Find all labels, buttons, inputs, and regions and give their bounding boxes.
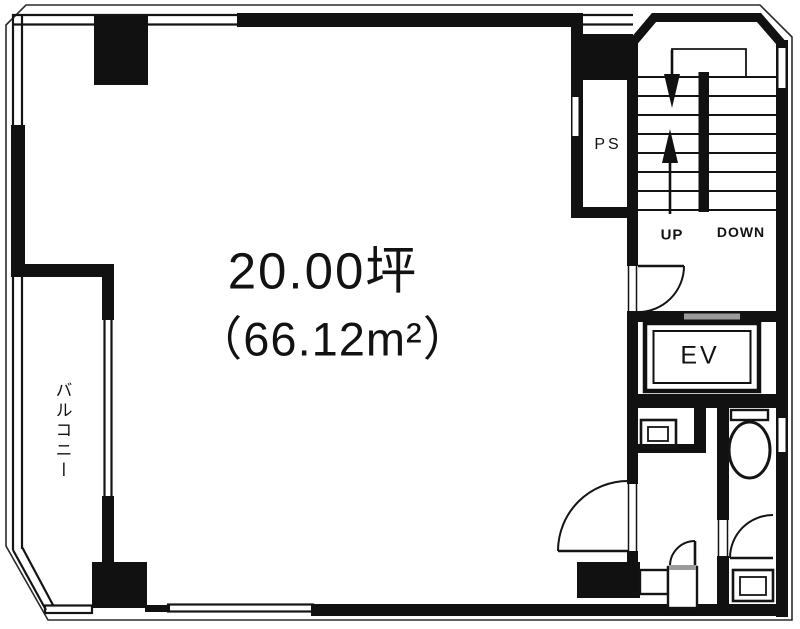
column-top-left — [94, 16, 148, 85]
stair-hall-door — [629, 266, 685, 312]
right-wall-window-wc — [779, 418, 786, 452]
stairs-up-label: UP — [661, 228, 684, 243]
washroom-cabinet — [640, 565, 697, 608]
floor-plan: 20.00坪 （66.12m²） バルコニー PS UP DOWN EV — [0, 0, 800, 629]
wc-wall-upper — [717, 408, 729, 520]
washroom-left-wall-strip — [627, 551, 638, 563]
fixtures — [640, 410, 773, 608]
wc-door — [719, 515, 774, 558]
stairs-down-label: DOWN — [717, 225, 765, 239]
stairwell-left-wall — [627, 38, 638, 266]
hand-basin-icon — [733, 570, 773, 601]
bottom-window-middle — [168, 605, 313, 612]
balcony-top-wall — [11, 264, 114, 277]
stairs-down-arrow-icon — [664, 50, 680, 108]
ps-wall-window — [573, 97, 579, 136]
stair-landing-outline — [672, 49, 746, 76]
sink-icon — [641, 420, 676, 447]
balcony-label: バルコニー — [54, 381, 71, 481]
compartment-sill — [669, 565, 696, 570]
sink-compartment-wall-h — [627, 444, 706, 453]
ev-bottom-wall — [627, 394, 788, 408]
wc-wall-lower — [717, 556, 729, 605]
right-wall-window-top — [779, 48, 786, 88]
entry-door — [558, 481, 637, 551]
column-bottom-left — [92, 562, 147, 608]
pipe-space-label: PS — [594, 137, 621, 153]
area-label-sqm: （66.12m²） — [195, 316, 470, 363]
stairwell — [638, 49, 776, 214]
bottom-wall-right — [311, 604, 788, 616]
balcony-inner-wall-upper — [102, 264, 114, 320]
left-wall — [11, 125, 25, 277]
area-label-tsubo: 20.00坪 — [228, 246, 419, 297]
column-bottom-right — [577, 562, 640, 598]
bottom-wall-stub — [145, 605, 170, 612]
balcony-inner-wall-lower — [102, 496, 114, 566]
ev-door — [684, 314, 740, 320]
stairwell-outer-wall — [630, 18, 782, 47]
stair-divider — [699, 72, 710, 212]
elevator-label: EV — [680, 344, 719, 369]
duct-block — [583, 34, 633, 80]
toilet-icon — [729, 410, 770, 478]
washroom-compartment-door — [670, 541, 695, 566]
top-wall — [237, 13, 583, 27]
ev-left-wall — [627, 322, 638, 396]
bottom-window-left — [45, 606, 92, 614]
right-wall — [776, 40, 788, 617]
